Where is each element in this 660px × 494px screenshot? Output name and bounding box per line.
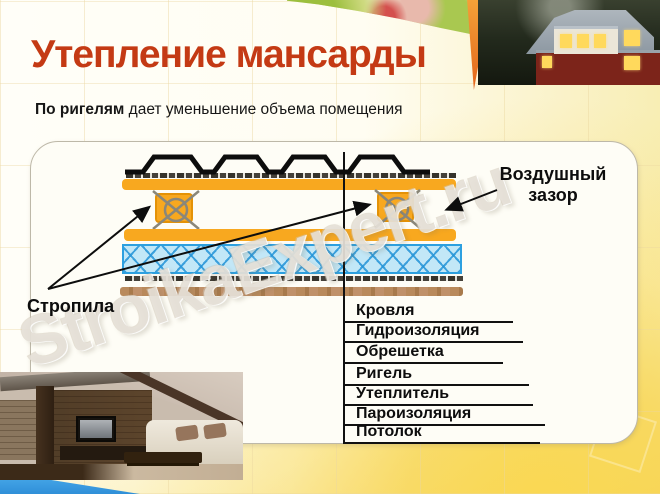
- lit-window: [624, 30, 640, 46]
- lit-window: [542, 56, 552, 68]
- house-at-dusk-photo: [478, 0, 660, 85]
- tv-screen: [76, 416, 116, 442]
- legend-row: Потолок: [343, 422, 540, 444]
- legend-row: Кровля: [343, 301, 513, 323]
- lit-window: [624, 56, 640, 70]
- lit-window: [577, 34, 589, 48]
- legend-label: Гидроизоляция: [343, 321, 479, 341]
- legend-label: Обрешетка: [343, 342, 444, 362]
- lit-window: [560, 34, 572, 48]
- coffee-table: [124, 452, 202, 463]
- rigel-beam-section: [155, 193, 193, 223]
- subtitle-bold: По ригелям: [35, 101, 124, 118]
- brick-wall-left: [0, 400, 40, 460]
- legend-label: Ригель: [343, 364, 412, 384]
- legend-label: Пароизоляция: [343, 404, 471, 424]
- subtitle-rest: дает уменьшение объема помещения: [124, 101, 402, 118]
- rafters-label: Стропила: [27, 296, 114, 317]
- air-gap-label-line2: зазор: [492, 185, 614, 206]
- legend-row: Обрешетка: [343, 342, 503, 364]
- legend-row: Гидроизоляция: [343, 321, 523, 343]
- page-title: Утепление мансарды: [31, 33, 426, 77]
- wood-floor: [0, 464, 243, 480]
- legend-row: Утеплитель: [343, 384, 533, 406]
- tv-picture: [80, 420, 112, 438]
- subtitle: По ригелям дает уменьшение объема помеще…: [35, 101, 403, 119]
- attic-interior-photo: [0, 372, 243, 480]
- legend-label: Потолок: [343, 422, 422, 442]
- presentation-slide: Утепление мансарды По ригелям дает умень…: [0, 0, 660, 494]
- legend-label: Кровля: [343, 301, 414, 321]
- lit-window: [594, 34, 606, 48]
- air-gap-label-line1: Воздушный: [492, 164, 614, 185]
- air-gap-label: Воздушный зазор: [492, 164, 614, 206]
- legend-label: Утеплитель: [343, 384, 449, 404]
- legend-row: Ригель: [343, 364, 529, 386]
- house-body: [536, 50, 660, 85]
